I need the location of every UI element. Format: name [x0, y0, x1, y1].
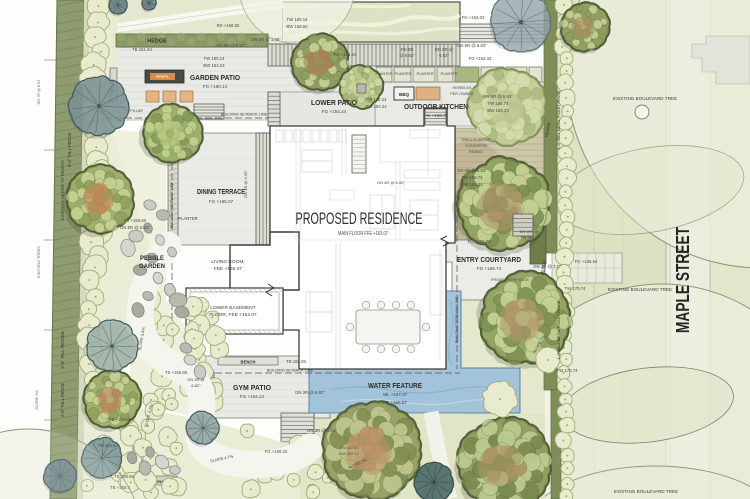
svg-text:BBQ: BBQ	[399, 92, 409, 97]
svg-text:GARDEN: GARDEN	[139, 263, 165, 270]
svg-text:FRONT ENTRY GATE: FRONT ENTRY GATE	[491, 278, 529, 282]
svg-text:4'-0" TALL METAL PICKET FENCE: 4'-0" TALL METAL PICKET FENCE	[557, 90, 561, 150]
svg-text:BUILDING SETBACK LINE: BUILDING SETBACK LINE	[170, 181, 174, 228]
svg-text:FG +158.22: FG +158.22	[265, 449, 288, 454]
svg-text:BUILDING SETBACK LINE: BUILDING SETBACK LINE	[221, 113, 268, 117]
svg-text:6'-0" TALL FENCE: 6'-0" TALL FENCE	[67, 133, 72, 168]
svg-text:TW 170.74: TW 170.74	[556, 368, 578, 373]
svg-text:DN 16R @: DN 16R @	[520, 229, 539, 234]
svg-text:TW 160.14: TW 160.14	[286, 17, 308, 22]
svg-text:TW 170.74: TW 170.74	[564, 286, 586, 291]
svg-text:BUILDING SETBACK LINE: BUILDING SETBACK LINE	[455, 296, 459, 343]
svg-text:FG +154.24: FG +154.24	[322, 109, 347, 114]
svg-text:GARDEN PATIO: GARDEN PATIO	[190, 73, 240, 82]
svg-text:RS +158.50: RS +158.50	[217, 23, 240, 28]
svg-text:BW 158.50: BW 158.50	[286, 24, 308, 29]
svg-text:6.82": 6.82"	[191, 383, 201, 388]
svg-text:PLANTER: PLANTER	[440, 72, 457, 76]
svg-text:TW 166.74: TW 166.74	[487, 101, 509, 106]
svg-text:EXISTING BOULEVARD TREE: EXISTING BOULEVARD TREE	[608, 287, 672, 292]
svg-text:OUTDOOR KITCHEN: OUTDOOR KITCHEN	[404, 102, 468, 111]
svg-text:EXISTING BOULEVARD TREE: EXISTING BOULEVARD TREE	[613, 96, 677, 101]
svg-text:6.82": 6.82"	[439, 53, 449, 58]
svg-text:HEDGE: HEDGE	[147, 39, 167, 45]
svg-text:FG +160.14: FG +160.14	[203, 84, 228, 89]
svg-text:@ 6.82": @ 6.82"	[399, 53, 415, 58]
svg-text:DN 5R @ 1.08": DN 5R @ 1.08"	[251, 37, 281, 42]
svg-text:TB 161.64: TB 161.64	[132, 47, 152, 52]
svg-text:4'-0" TALL FENCE: 4'-0" TALL FENCE	[60, 383, 65, 418]
svg-text:DINING TERRACE: DINING TERRACE	[197, 187, 245, 196]
svg-text:PLANTER: PLANTER	[394, 72, 411, 76]
svg-text:TS +155.95: TS +155.95	[165, 370, 188, 375]
svg-text:DN 5R @ 6.62": DN 5R @ 6.62"	[120, 225, 150, 230]
svg-text:DN 5R @ 6.57": DN 5R @ 6.57"	[216, 43, 246, 48]
svg-text:DN 3R @ 6.82": DN 3R @ 6.82"	[295, 390, 325, 395]
svg-text:MAIN FLOOR FFE +163.07: MAIN FLOOR FFE +163.07	[338, 231, 388, 237]
svg-text:DN 2R @ 7.2": DN 2R @ 7.2"	[533, 264, 561, 269]
svg-text:WATER FEATURE: WATER FEATURE	[368, 383, 422, 390]
svg-text:TW 170.24: TW 170.24	[365, 97, 387, 102]
svg-text:DN 8R @: DN 8R @	[435, 47, 453, 52]
svg-text:4'-0" TALL METAL PICKET FENCE: 4'-0" TALL METAL PICKET FENCE	[557, 300, 561, 360]
svg-text:GYM PATIO: GYM PATIO	[233, 383, 271, 392]
svg-text:SLOPE 2%: SLOPE 2%	[35, 390, 39, 410]
svg-text:MAPLE STREET: MAPLE STREET	[673, 227, 693, 333]
svg-text:FG +154.24: FG +154.24	[240, 394, 265, 399]
svg-text:BW 163.33: BW 163.33	[487, 108, 509, 113]
svg-text:DN 6R @ 6.83": DN 6R @ 6.83"	[457, 43, 487, 48]
svg-text:PLANTER: PLANTER	[178, 216, 197, 221]
svg-text:DN 8R: DN 8R	[401, 47, 414, 52]
svg-text:PLANTER: PLANTER	[416, 72, 433, 76]
svg-text:PEBBLE: PEBBLE	[140, 255, 165, 262]
svg-text:PER OWNER: PER OWNER	[450, 92, 474, 96]
svg-text:WL +167.07: WL +167.07	[383, 392, 408, 397]
svg-text:BW 154.24: BW 154.24	[203, 63, 225, 68]
svg-text:FG +165.07: FG +165.07	[209, 199, 234, 204]
svg-text:TB 155.85: TB 155.85	[286, 359, 306, 364]
svg-text:LOWER PATIO: LOWER PATIO	[311, 98, 357, 107]
svg-text:FG +163.03: FG +163.03	[462, 15, 485, 20]
svg-text:BUILDING SETBACK LINE: BUILDING SETBACK LINE	[267, 369, 314, 373]
svg-text:TB +157.09: TB +157.09	[109, 417, 132, 422]
svg-text:EXISTING HEDGE TO REMAIN: EXISTING HEDGE TO REMAIN	[60, 160, 65, 220]
svg-text:DN 7R @ 6.92: DN 7R @ 6.92	[37, 80, 41, 105]
svg-text:FG +154.24: FG +154.24	[334, 52, 357, 57]
svg-text:EXISTING BOULEVARD TREE: EXISTING BOULEVARD TREE	[614, 489, 678, 494]
svg-text:LIVING ROOM,: LIVING ROOM,	[211, 259, 244, 265]
svg-text:TW 163.2: TW 163.2	[521, 235, 538, 240]
svg-text:6'-0" TALL FENCES: 6'-0" TALL FENCES	[60, 331, 65, 368]
svg-text:TW 167.07: TW 167.07	[339, 445, 358, 450]
svg-text:PAVING: PAVING	[469, 149, 483, 154]
svg-text:BW 154.24: BW 154.24	[365, 104, 387, 109]
svg-text:FG +166.74: FG +166.74	[468, 239, 491, 244]
svg-text:LOWER BASEMENT: LOWER BASEMENT	[210, 305, 255, 311]
svg-text:CONCRETE: CONCRETE	[465, 143, 487, 148]
svg-text:ENTRY COURTYARD: ENTRY COURTYARD	[457, 255, 521, 264]
svg-text:TW 166.74: TW 166.74	[461, 175, 483, 180]
svg-text:HERBS AS: HERBS AS	[453, 86, 472, 90]
svg-text:TW 160.14: TW 160.14	[203, 56, 225, 61]
svg-text:DW 162.22: DW 162.22	[339, 451, 358, 456]
svg-text:DN 4R @ 6.00": DN 4R @ 6.00"	[377, 180, 405, 185]
svg-text:FLOOR, FEE +152.07: FLOOR, FEE +152.07	[209, 312, 257, 318]
svg-text:FG +166.74: FG +166.74	[424, 113, 449, 118]
svg-text:PLANTER: PLANTER	[375, 72, 392, 76]
svg-text:DN 6R @ 6.83": DN 6R @ 6.83"	[483, 94, 513, 99]
svg-text:DN 3R @: DN 3R @	[187, 377, 204, 382]
svg-text:TRELLIS ABOVE: TRELLIS ABOVE	[461, 137, 491, 142]
svg-text:BW 163.33: BW 163.33	[461, 182, 483, 187]
svg-text:FG +166.74: FG +166.74	[477, 266, 502, 271]
svg-text:FG +163.33: FG +163.33	[469, 56, 492, 61]
svg-text:DN 3R @ 6.82": DN 3R @ 6.82"	[307, 428, 337, 433]
svg-text:FEE +165.07: FEE +165.07	[214, 266, 242, 272]
svg-text:PROPOSED RESIDENCE: PROPOSED RESIDENCE	[296, 210, 423, 228]
svg-text:FG +165.54: FG +165.54	[575, 259, 598, 264]
svg-text:FIREPL: FIREPL	[156, 75, 170, 79]
svg-text:BENCH: BENCH	[241, 360, 256, 365]
svg-text:TS +159.60: TS +159.60	[124, 218, 147, 223]
svg-text:TB 158.53: TB 158.53	[98, 443, 118, 448]
svg-text:FG +165.57: FG +165.57	[383, 400, 407, 405]
svg-text:DN 6R @ 6.83": DN 6R @ 6.83"	[457, 168, 487, 173]
svg-text:EXISTING TREES: EXISTING TREES	[37, 246, 41, 278]
